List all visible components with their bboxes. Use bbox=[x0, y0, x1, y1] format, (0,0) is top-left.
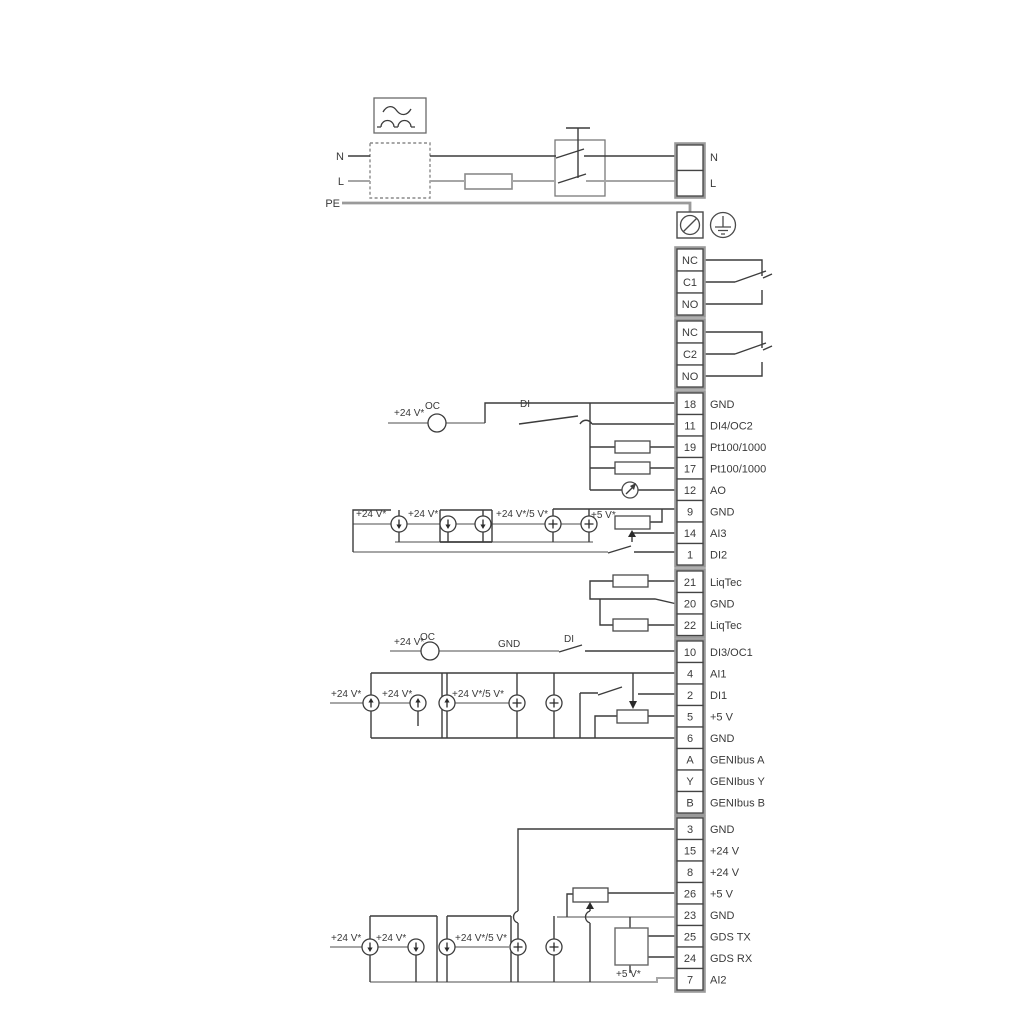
annotation-di: DI bbox=[520, 399, 530, 410]
terminal-number: 10 bbox=[684, 647, 696, 659]
supply-unit-dashed-box bbox=[370, 143, 430, 198]
potentiometer-ai3 bbox=[615, 516, 650, 537]
annotation-v5: +5 V* bbox=[616, 969, 641, 980]
diagram-canvas: N L PE N L 18GND11DI4/OC219Pt100/100017P… bbox=[0, 0, 1024, 1024]
terminal-label: GND bbox=[710, 598, 735, 610]
terminal-number: B bbox=[686, 797, 693, 809]
relay-terminal-label: NO bbox=[682, 299, 699, 311]
terminal-label: AO bbox=[710, 485, 726, 497]
resistor-pt100-1 bbox=[615, 441, 650, 453]
terminal-number: 14 bbox=[684, 528, 696, 540]
relay-terminal-label: C1 bbox=[683, 277, 697, 289]
annotation-v24: +24 V* bbox=[331, 689, 361, 700]
terminal-label: GND bbox=[710, 910, 735, 922]
terminal-label: AI1 bbox=[710, 668, 727, 680]
terminal-label: AI3 bbox=[710, 528, 727, 540]
terminal-label: DI1 bbox=[710, 690, 727, 702]
terminal-label: Pt100/1000 bbox=[710, 442, 766, 454]
terminal-number: 18 bbox=[684, 399, 696, 411]
label-pe: PE bbox=[325, 198, 340, 210]
annotation-v24: +24 V* bbox=[356, 509, 386, 520]
label-n-in: N bbox=[336, 151, 344, 163]
potentiometer-ai1 bbox=[617, 701, 648, 723]
terminal-number: 9 bbox=[687, 506, 693, 518]
annotation-v24: +24 V* bbox=[408, 509, 438, 520]
annotation-di: DI bbox=[564, 634, 574, 645]
label-l-out: L bbox=[710, 178, 716, 190]
mains-filter-symbol bbox=[374, 98, 426, 133]
terminal-number: 20 bbox=[684, 598, 696, 610]
annotation-v24: +24 V* bbox=[394, 408, 424, 419]
relay-terminal-label: C2 bbox=[683, 349, 697, 361]
terminal-label: DI3/OC1 bbox=[710, 647, 753, 659]
ground-screw-terminal bbox=[677, 212, 703, 238]
fuse-symbol bbox=[465, 174, 512, 189]
terminal-label: GND bbox=[710, 824, 735, 836]
earth-symbol bbox=[711, 213, 736, 238]
resistor-pt100-2 bbox=[615, 462, 650, 474]
annotation-oc: OC bbox=[420, 632, 435, 643]
terminal-number: 15 bbox=[684, 845, 696, 857]
terminal-label: DI2 bbox=[710, 549, 727, 561]
terminal-label: AI2 bbox=[710, 974, 727, 986]
power-terminal-cell bbox=[677, 145, 703, 171]
terminal-label: +24 V bbox=[710, 867, 740, 879]
annotation-v24_5: +24 V*/5 V* bbox=[496, 509, 548, 520]
terminal-label: GND bbox=[710, 399, 735, 411]
relay-terminal-label: NC bbox=[682, 255, 698, 267]
terminal-number: A bbox=[686, 754, 694, 766]
terminal-number: 22 bbox=[684, 620, 696, 632]
terminal-number: 25 bbox=[684, 931, 696, 943]
terminal-label: GENIbus B bbox=[710, 797, 765, 809]
terminal-label: +5 V bbox=[710, 888, 734, 900]
annotation-v5: +5 V* bbox=[591, 510, 616, 521]
terminal-label: +5 V bbox=[710, 711, 734, 723]
terminal-number: 3 bbox=[687, 824, 693, 836]
terminal-number: 21 bbox=[684, 577, 696, 589]
terminal-number: 2 bbox=[687, 690, 693, 702]
annotation-v24: +24 V* bbox=[376, 933, 406, 944]
annotation-v24: +24 V* bbox=[331, 933, 361, 944]
label-l-in: L bbox=[338, 176, 344, 188]
resistor-liqtec-2 bbox=[613, 619, 648, 631]
terminal-number: Y bbox=[686, 776, 694, 788]
terminal-label: GND bbox=[710, 506, 735, 518]
open-collector-icon bbox=[428, 414, 446, 432]
label-n-out: N bbox=[710, 152, 718, 164]
relay-terminal-label: NO bbox=[682, 371, 699, 383]
gds-sensor-box bbox=[615, 928, 648, 965]
main-switch-symbol bbox=[555, 140, 605, 196]
terminal-label: GDS TX bbox=[710, 931, 751, 943]
terminal-number: 11 bbox=[684, 420, 695, 432]
annotation-v24_5: +24 V*/5 V* bbox=[455, 933, 507, 944]
terminal-number: 19 bbox=[684, 442, 696, 454]
annotation-v24_5: +24 V*/5 V* bbox=[452, 689, 504, 700]
terminal-number: 23 bbox=[684, 910, 696, 922]
terminal-number: 12 bbox=[684, 485, 696, 497]
annotation-v24: +24 V* bbox=[382, 689, 412, 700]
power-terminal-cell bbox=[677, 171, 703, 197]
wiring-diagram: N L PE N L 18GND11DI4/OC219Pt100/100017P… bbox=[0, 0, 1024, 1024]
terminal-label: GENIbus A bbox=[710, 754, 765, 766]
terminal-number: 7 bbox=[687, 974, 693, 986]
terminal-number: 1 bbox=[687, 549, 693, 561]
terminal-number: 26 bbox=[684, 888, 696, 900]
terminal-label: LiqTec bbox=[710, 620, 742, 632]
terminal-number: 6 bbox=[687, 733, 693, 745]
terminal-label: GND bbox=[710, 733, 735, 745]
wires-dark bbox=[348, 128, 772, 982]
terminal-label: GENIbus Y bbox=[710, 776, 765, 788]
ammeter-icon bbox=[622, 482, 638, 498]
terminal-label: LiqTec bbox=[710, 577, 742, 589]
terminal-label: GDS RX bbox=[710, 953, 753, 965]
annotation-oc: OC bbox=[425, 401, 440, 412]
terminal-label: DI4/OC2 bbox=[710, 420, 753, 432]
terminal-number: 17 bbox=[684, 463, 696, 475]
annotation-gnd: GND bbox=[498, 639, 520, 650]
terminal-number: 4 bbox=[687, 668, 693, 680]
terminal-number: 5 bbox=[687, 711, 693, 723]
potentiometer-ai2 bbox=[573, 888, 608, 909]
terminal-number: 8 bbox=[687, 867, 693, 879]
relay-terminal-label: NC bbox=[682, 327, 698, 339]
resistor-liqtec-1 bbox=[613, 575, 648, 587]
terminal-label: Pt100/1000 bbox=[710, 463, 766, 475]
terminal-label: +24 V bbox=[710, 845, 740, 857]
terminal-number: 24 bbox=[684, 953, 696, 965]
